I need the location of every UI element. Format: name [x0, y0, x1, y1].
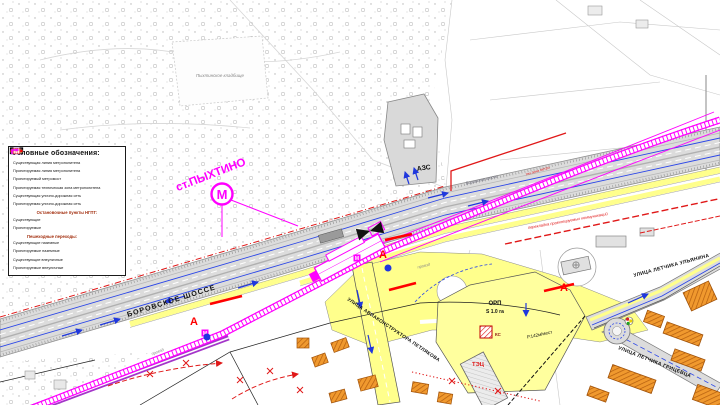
legend-item-crossing-exist-off: Существующие внеуличные	[13, 256, 121, 264]
legend-label: Проектируемые внеуличные	[13, 267, 63, 271]
metro-logo-m: М	[217, 187, 228, 202]
legend-label: Проектируемые	[13, 227, 41, 231]
stop-a: А	[560, 282, 568, 294]
legend-section-crossings: Пешеходные переходы:	[13, 233, 121, 240]
stop-point-dot	[204, 334, 211, 341]
metro-entrance-icon: М	[354, 255, 361, 263]
legend-item-metro-projected: Проектируемая линия метрополитена	[13, 168, 121, 176]
crossing-proj-off-icon	[9, 147, 24, 155]
stop-a: А	[190, 316, 198, 328]
legend-label: Существующие наземные	[13, 242, 59, 246]
legend-label: Существующая улично-дорожная сеть	[13, 195, 81, 199]
orp-area-label: S 1.0 га	[486, 309, 504, 315]
building	[596, 236, 626, 247]
legend-item-crossing-proj-off: Проектируемые внеуличные	[13, 265, 121, 273]
legend-item-stop-projected: Проектируемые	[13, 225, 121, 233]
gas-station-azs	[384, 94, 438, 186]
ks-object	[480, 326, 492, 338]
cemetery-area	[172, 36, 268, 106]
legend-label: Существующие	[13, 219, 41, 223]
legend-label: Проектируемая улично-дорожная сеть	[13, 203, 81, 207]
building	[25, 371, 35, 379]
legend-item-stop-existing: Существующие	[13, 216, 121, 224]
ks-label: КС	[495, 332, 502, 337]
plan-map-screenshot: М М	[0, 0, 720, 405]
legend-item-metro-existing: Существующая линия метрополитена	[13, 160, 121, 168]
legend-label: Проектируемые наземные	[13, 250, 60, 254]
legend-label: Существующие внеуличные	[13, 259, 63, 263]
stop-a: А	[379, 249, 387, 261]
legend-item-street-projected: Проектируемая улично-дорожная сеть	[13, 201, 121, 209]
building	[54, 380, 66, 389]
legend-item-crossing-proj-ground: Проектируемые наземные	[13, 248, 121, 256]
traffic-light-icon	[625, 317, 633, 325]
legend-item-street-existing: Существующая улично-дорожная сеть	[13, 193, 121, 201]
cemetery-label: Пыхтинское кладбище	[196, 73, 245, 78]
legend-label: Проектируемая линия метрополитена	[13, 170, 80, 174]
building	[588, 6, 602, 15]
orp-label: ОРП	[489, 301, 502, 307]
school-building	[558, 248, 596, 286]
legend: Условные обозначения: Существующая линия…	[8, 146, 126, 276]
legend-item-metro-bridge: Проектируемый метромост	[13, 176, 121, 184]
legend-label: Проектируемый метромост	[13, 178, 61, 182]
stop-point-dot	[385, 265, 392, 272]
metro-m-glyph: М	[355, 256, 359, 262]
legend-section-stops: Остановочные пункты НГПТ:	[13, 209, 121, 216]
building	[636, 20, 648, 28]
legend-item-crossing-exist-ground: Существующие наземные	[13, 240, 121, 248]
tec-label: ТЭЦ	[472, 362, 485, 368]
legend-item-techzone: Проектируемая техническая зона метрополи…	[13, 184, 121, 192]
legend-label: Существующая линия метрополитена	[13, 162, 80, 166]
legend-title: Условные обозначения:	[13, 150, 121, 157]
legend-label: Проектируемая техническая зона метрополи…	[13, 187, 100, 191]
